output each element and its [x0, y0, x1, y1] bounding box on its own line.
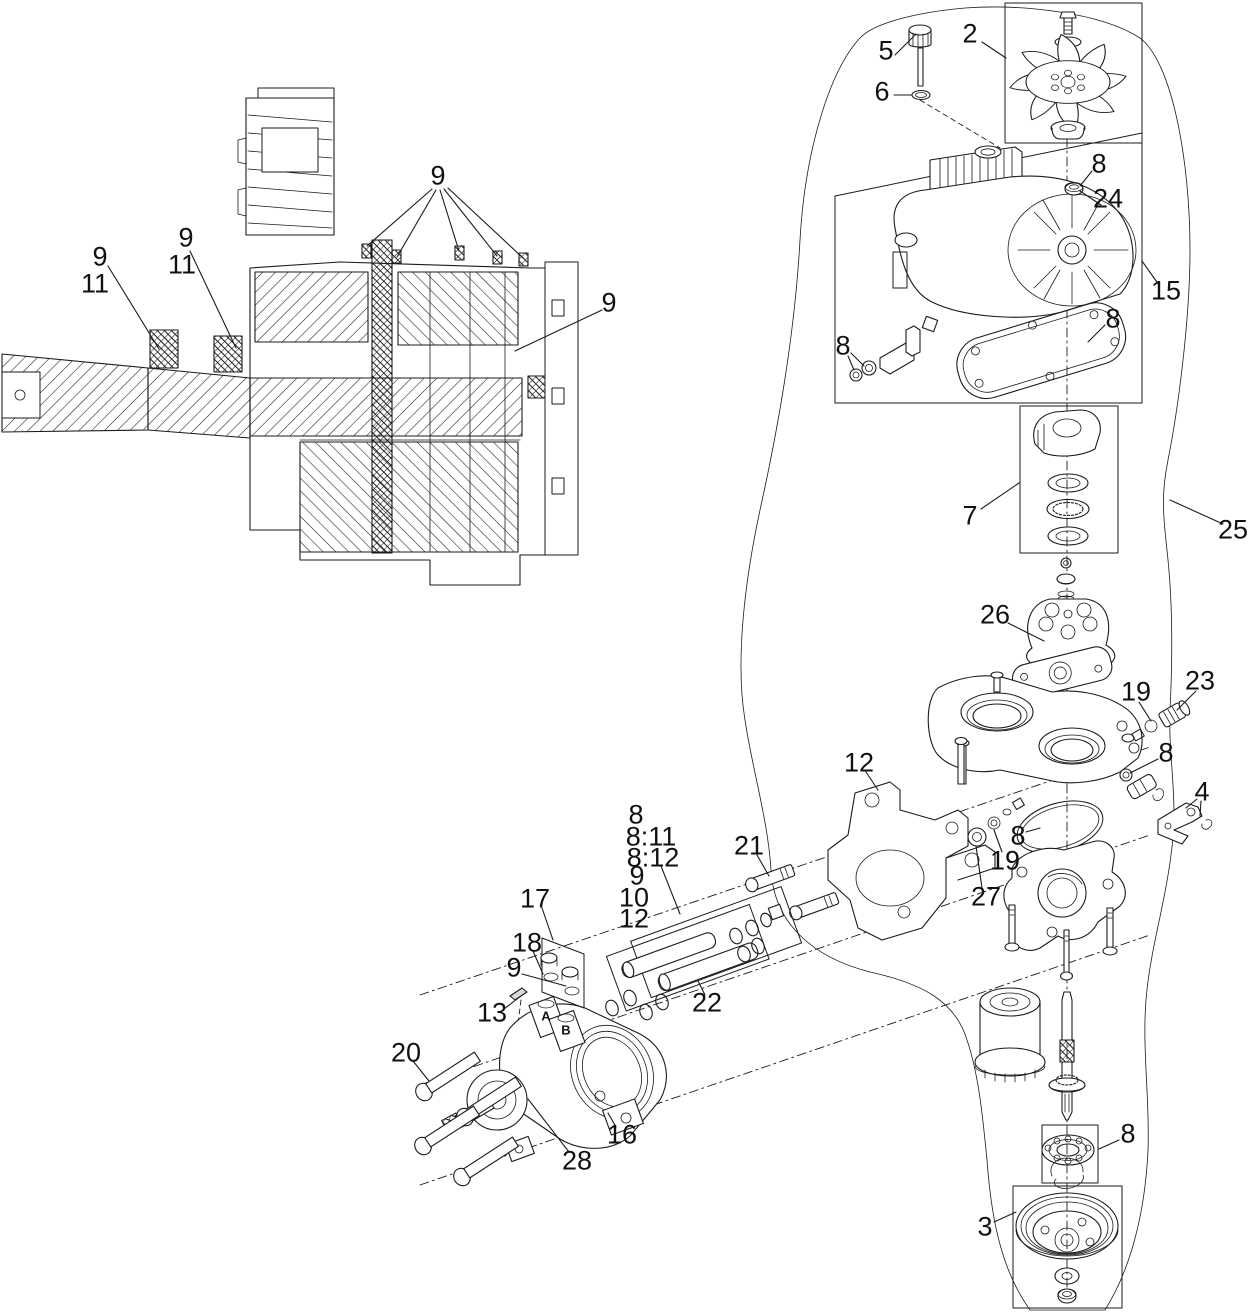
- part-label-3: 3: [977, 1212, 992, 1243]
- part-label-16: 16: [607, 1120, 637, 1151]
- part-label-11: 11: [168, 250, 196, 281]
- part-label-25: 25: [1218, 515, 1248, 546]
- part-label-9: 9: [430, 161, 445, 192]
- part-label-17: 17: [520, 884, 550, 915]
- part-label-23: 23: [1185, 666, 1215, 697]
- part-label-15: 15: [1151, 276, 1181, 307]
- part-label-B: B: [561, 1023, 570, 1038]
- part-label-8: 8: [835, 331, 850, 362]
- labels-layer: 9119119956282415887252619238412218192788…: [0, 0, 1258, 1313]
- part-label-5: 5: [878, 36, 893, 67]
- part-label-2: 2: [962, 19, 977, 50]
- part-label-6: 6: [874, 77, 889, 108]
- part-label-20: 20: [391, 1038, 421, 1069]
- part-label-28: 28: [562, 1146, 592, 1177]
- part-label-8: 8: [1158, 738, 1173, 769]
- part-label-8: 8: [1120, 1119, 1135, 1150]
- part-label-9: 9: [506, 953, 521, 984]
- part-label-26: 26: [980, 600, 1010, 631]
- part-label-8: 8: [1091, 149, 1106, 180]
- part-label-13: 13: [477, 998, 507, 1029]
- part-label-A: A: [541, 1009, 550, 1024]
- part-label-4: 4: [1194, 777, 1209, 808]
- part-label-12: 12: [844, 748, 874, 779]
- part-label-19: 19: [1121, 677, 1151, 708]
- part-label-7: 7: [962, 501, 977, 532]
- part-label-22: 22: [692, 988, 722, 1019]
- parts-diagram-canvas: 9119119956282415887252619238412218192788…: [0, 0, 1258, 1313]
- part-label-27: 27: [971, 882, 1001, 913]
- part-label-24: 24: [1093, 184, 1123, 215]
- part-label-8: 8: [1105, 304, 1120, 335]
- part-label-11: 11: [81, 269, 109, 300]
- part-label-9: 9: [601, 288, 616, 319]
- part-label-21: 21: [734, 831, 764, 862]
- part-label-12: 12: [619, 904, 649, 935]
- part-label-19: 19: [990, 846, 1020, 877]
